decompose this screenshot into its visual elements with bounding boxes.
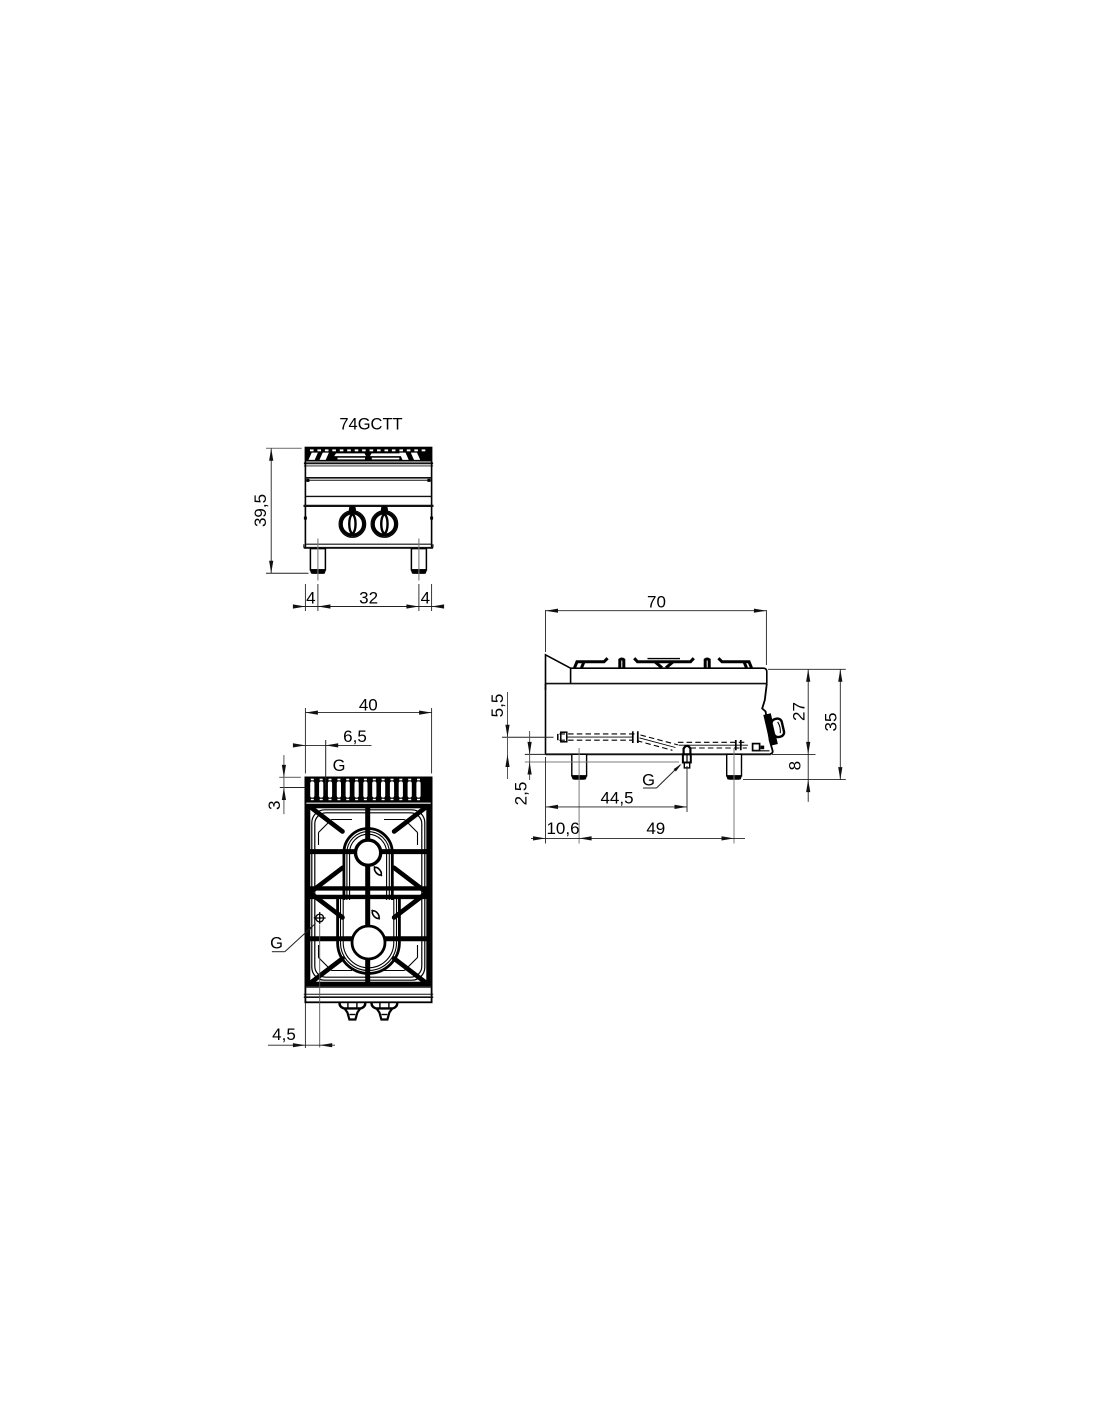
svg-text:2,5: 2,5	[511, 782, 530, 806]
svg-text:27: 27	[790, 702, 809, 721]
svg-text:35: 35	[822, 713, 841, 732]
svg-text:70: 70	[647, 593, 666, 612]
svg-text:8: 8	[786, 761, 805, 770]
svg-text:4: 4	[421, 589, 430, 608]
svg-text:49: 49	[646, 819, 665, 838]
svg-text:74GCTT: 74GCTT	[339, 416, 402, 434]
svg-text:G: G	[642, 772, 655, 790]
svg-text:G: G	[333, 757, 346, 775]
svg-text:44,5: 44,5	[600, 789, 633, 808]
svg-text:4: 4	[306, 589, 315, 608]
svg-text:5,5: 5,5	[488, 694, 507, 718]
svg-text:40: 40	[359, 695, 378, 714]
svg-text:32: 32	[359, 589, 378, 608]
svg-text:3: 3	[265, 801, 284, 810]
svg-text:10,6: 10,6	[546, 819, 579, 838]
svg-text:G: G	[270, 934, 283, 952]
svg-text:6,5: 6,5	[343, 727, 367, 746]
svg-text:39,5: 39,5	[251, 494, 270, 527]
svg-text:4,5: 4,5	[272, 1025, 296, 1044]
